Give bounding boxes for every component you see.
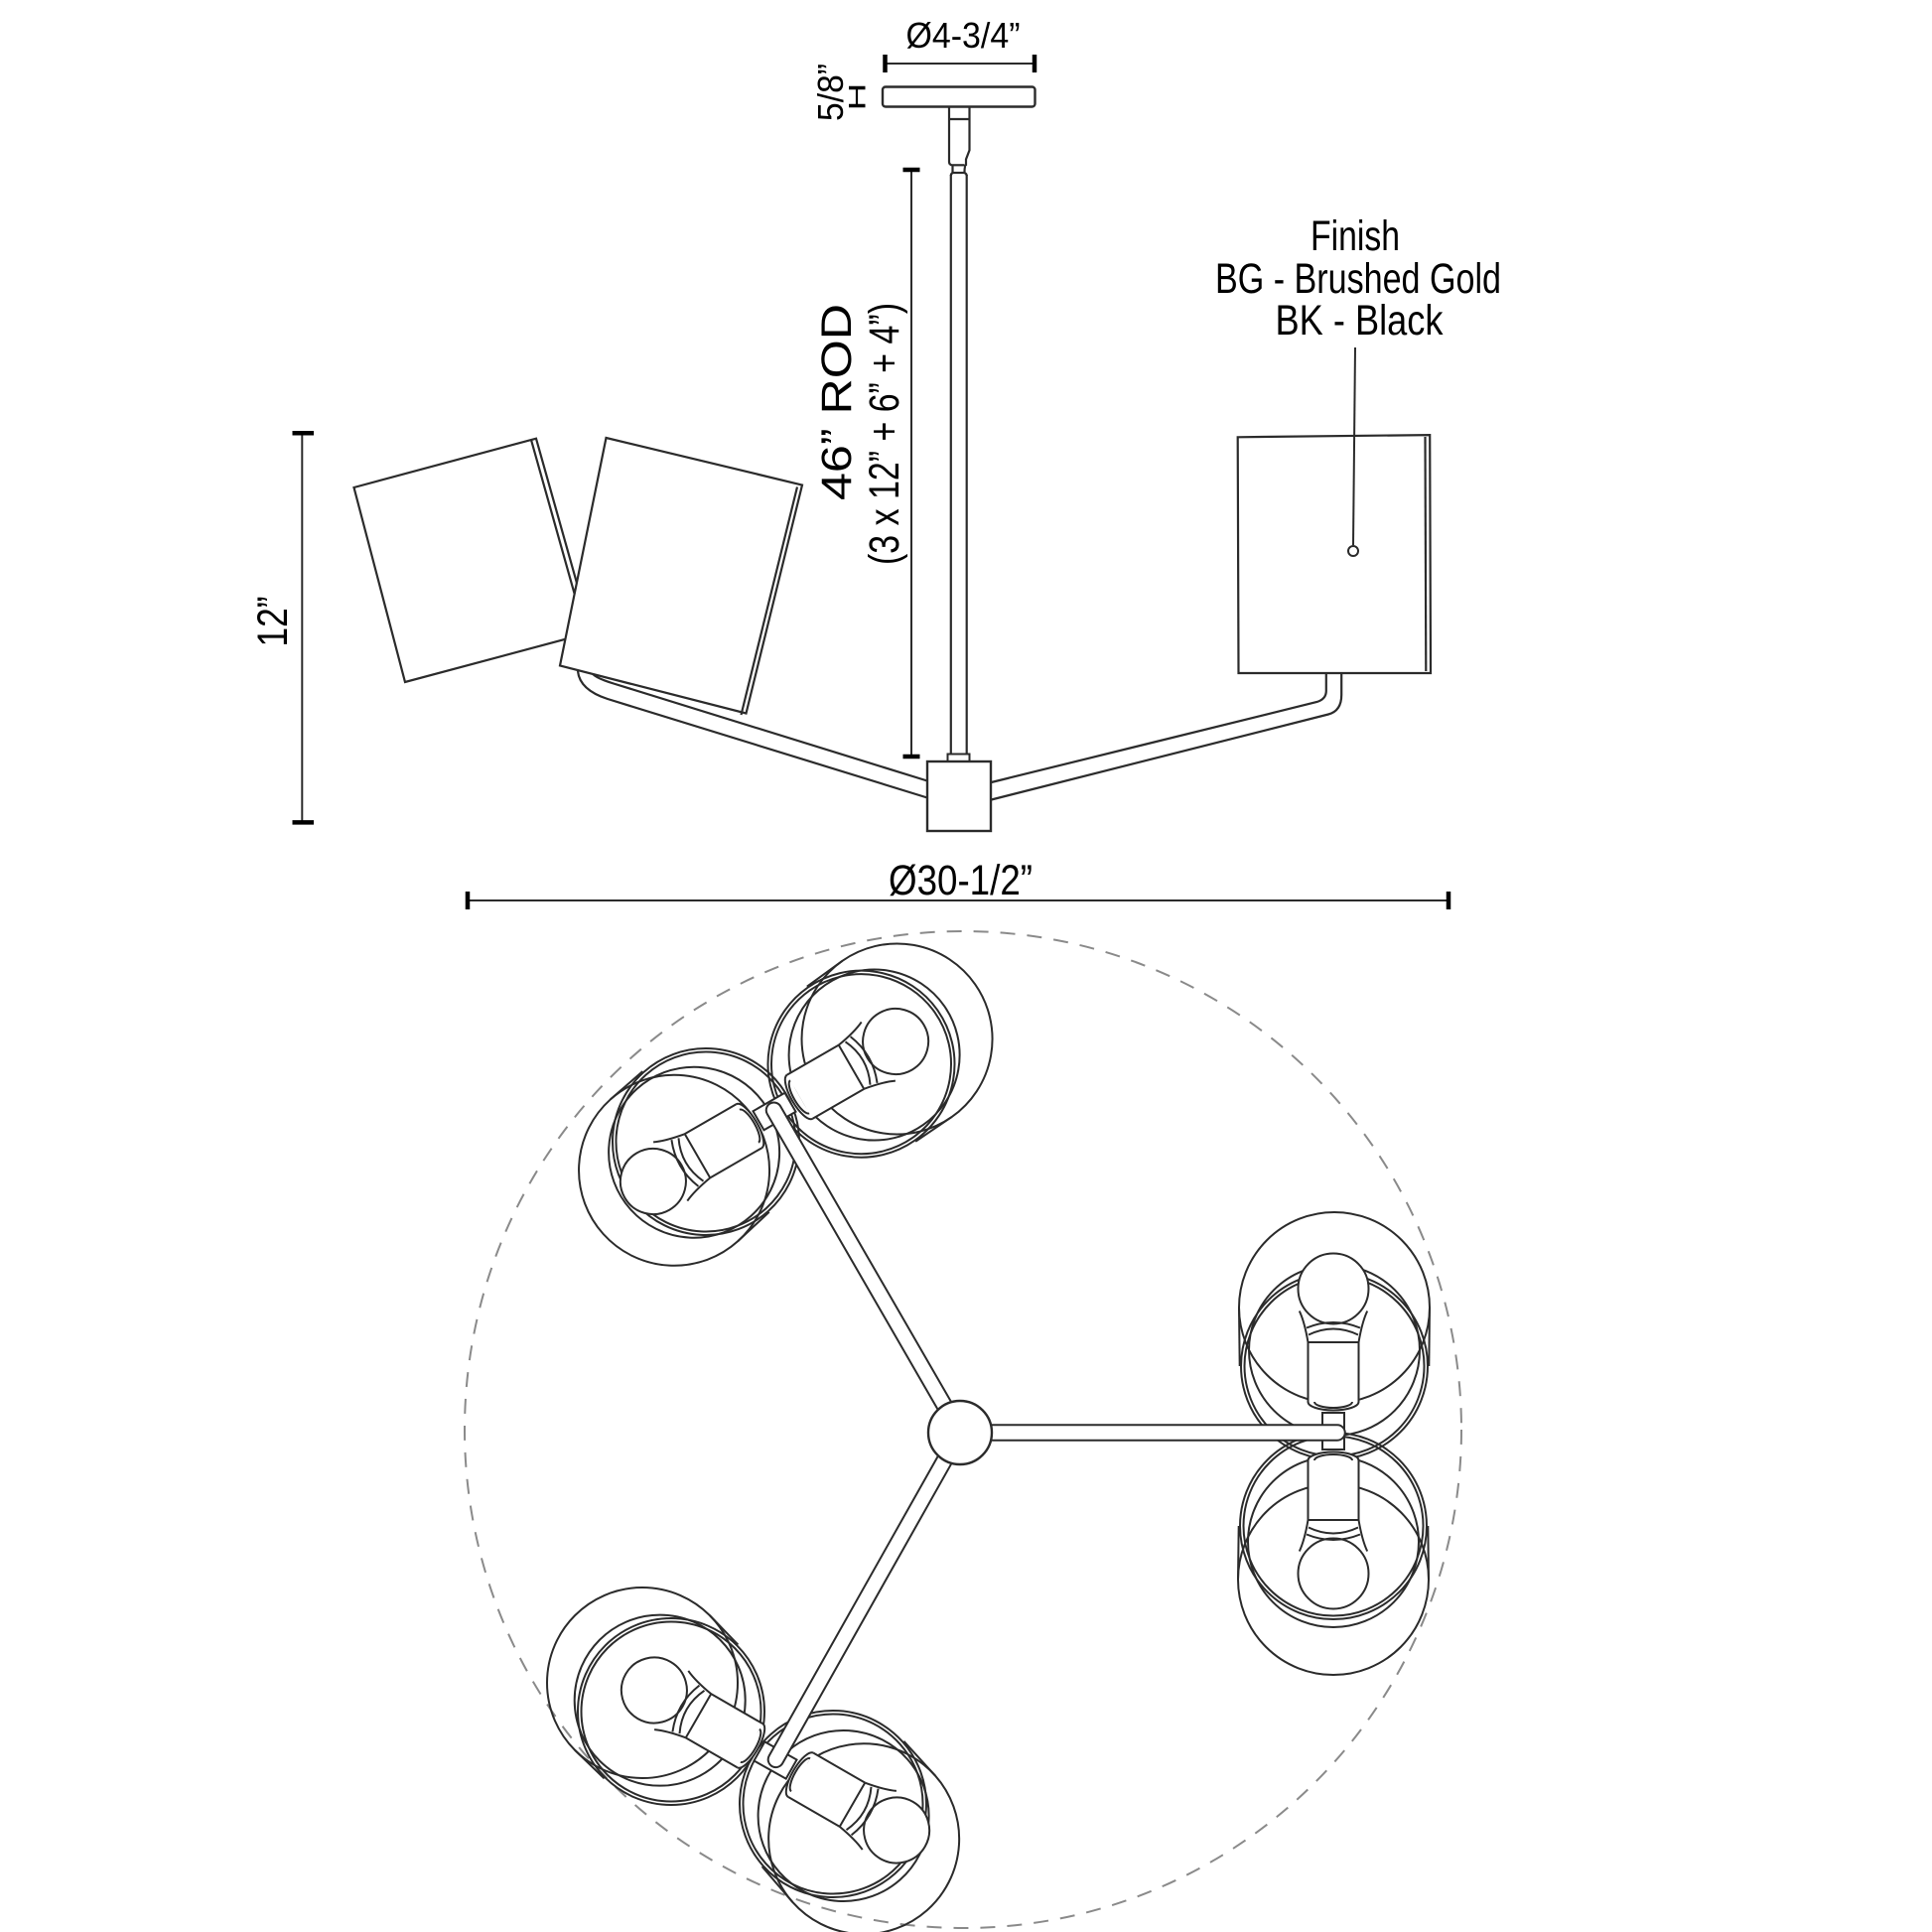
- svg-text:5/8”: 5/8”: [810, 64, 851, 121]
- svg-text:Ø30-1/2”: Ø30-1/2”: [889, 857, 1033, 904]
- svg-text:Finish: Finish: [1311, 212, 1400, 260]
- svg-text:BG - Brushed Gold: BG - Brushed Gold: [1215, 255, 1501, 303]
- svg-text:Ø4-3/4”: Ø4-3/4”: [906, 15, 1021, 56]
- svg-text:12”: 12”: [249, 597, 297, 647]
- svg-text:46” ROD: 46” ROD: [813, 304, 861, 500]
- svg-text:(3 x 12” + 6” + 4”): (3 x 12” + 6” + 4”): [861, 303, 908, 565]
- svg-text:BK - Black: BK - Black: [1276, 297, 1444, 345]
